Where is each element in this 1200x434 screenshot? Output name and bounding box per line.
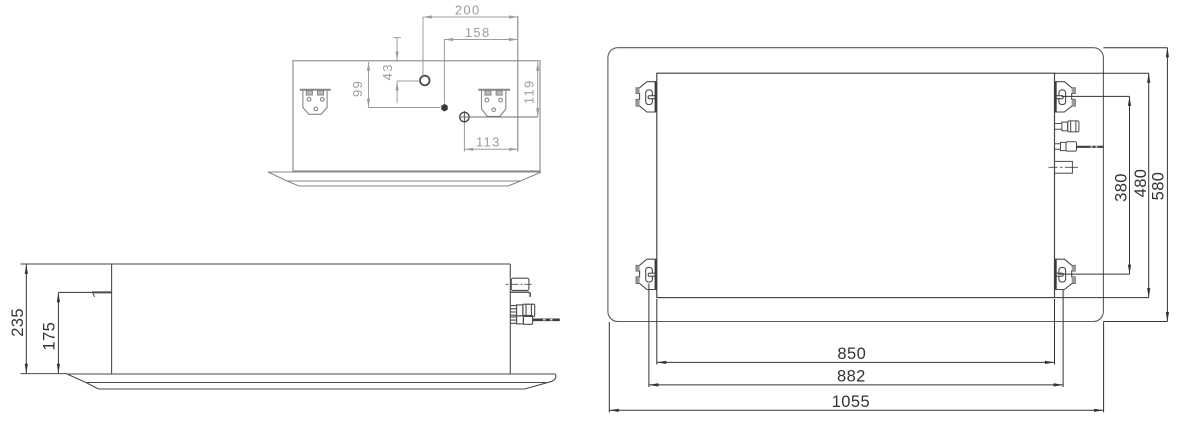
svg-text:1055: 1055: [832, 393, 870, 411]
svg-text:850: 850: [837, 345, 866, 363]
svg-text:882: 882: [837, 368, 866, 386]
svg-text:380: 380: [1112, 173, 1130, 202]
svg-text:119: 119: [521, 79, 536, 104]
svg-text:99: 99: [350, 80, 365, 97]
svg-text:158: 158: [465, 25, 491, 40]
svg-text:200: 200: [455, 3, 481, 18]
svg-text:113: 113: [476, 134, 501, 149]
svg-text:480: 480: [1132, 169, 1150, 198]
svg-text:175: 175: [40, 322, 58, 351]
svg-text:235: 235: [9, 308, 27, 337]
svg-text:580: 580: [1150, 172, 1168, 201]
svg-text:43: 43: [380, 63, 395, 80]
